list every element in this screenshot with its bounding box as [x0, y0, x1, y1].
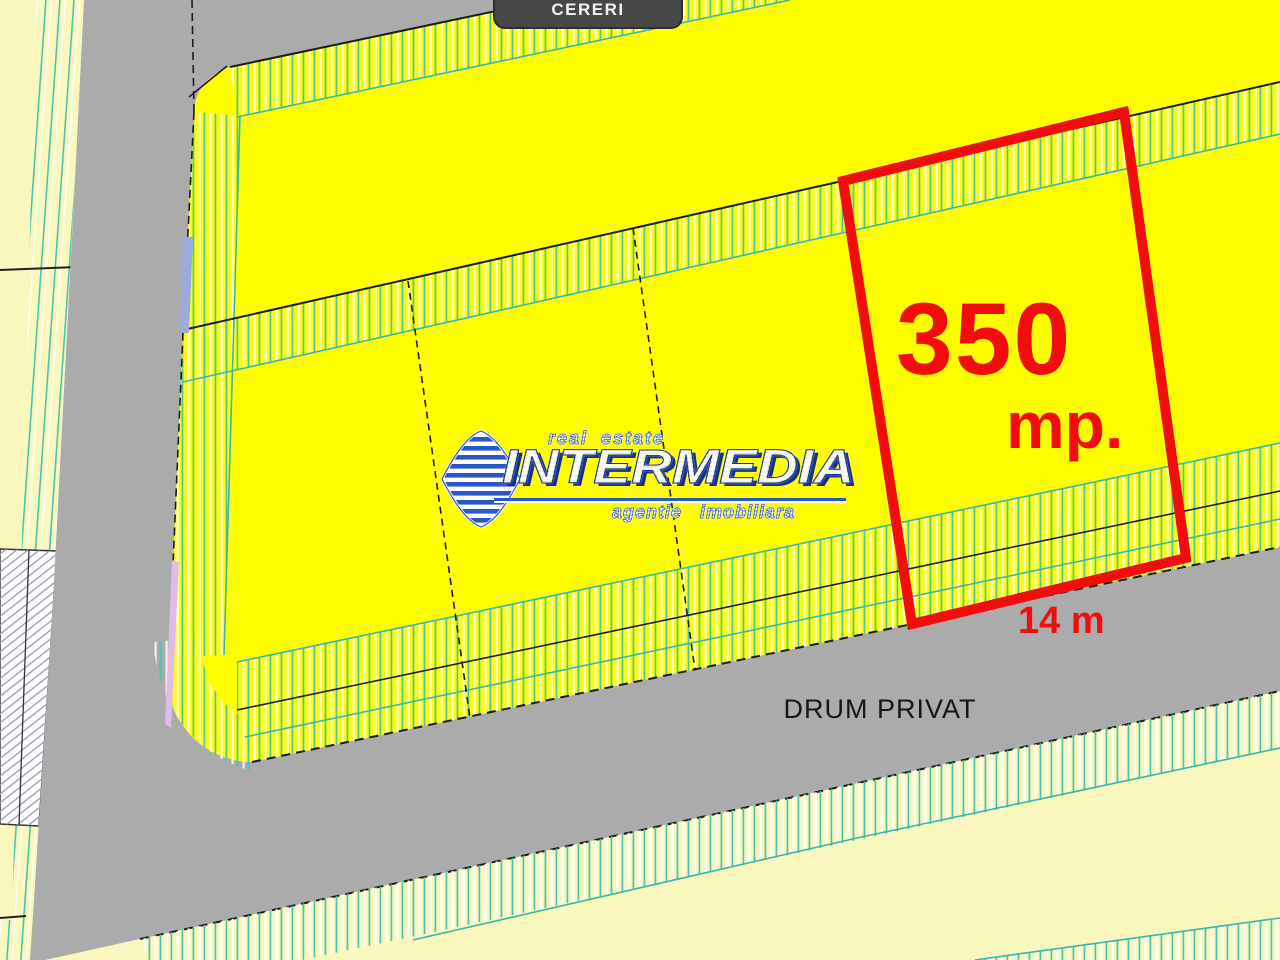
cereri-tab-label: CERERI	[551, 0, 624, 20]
road-label: DRUM PRIVAT	[770, 694, 990, 725]
agency-logo: real estate INTERMEDIA INTERMEDIA agenti…	[436, 418, 856, 534]
logo-underline	[494, 498, 846, 501]
plot-frontage-label: 14 m	[1018, 602, 1105, 640]
cadastral-plan: DRUM PRIVAT 350 mp. 14 m CERERI real est…	[0, 0, 1280, 960]
logo-tagline-bottom: agentie imobiliara	[612, 502, 795, 523]
cereri-tab[interactable]: CERERI	[493, 0, 683, 29]
plot-area-unit: mp.	[1006, 392, 1123, 458]
logo-brand-text: INTERMEDIA	[502, 440, 854, 495]
logo-brand: INTERMEDIA INTERMEDIA	[502, 440, 842, 494]
plot-area-value: 350	[896, 288, 1072, 390]
